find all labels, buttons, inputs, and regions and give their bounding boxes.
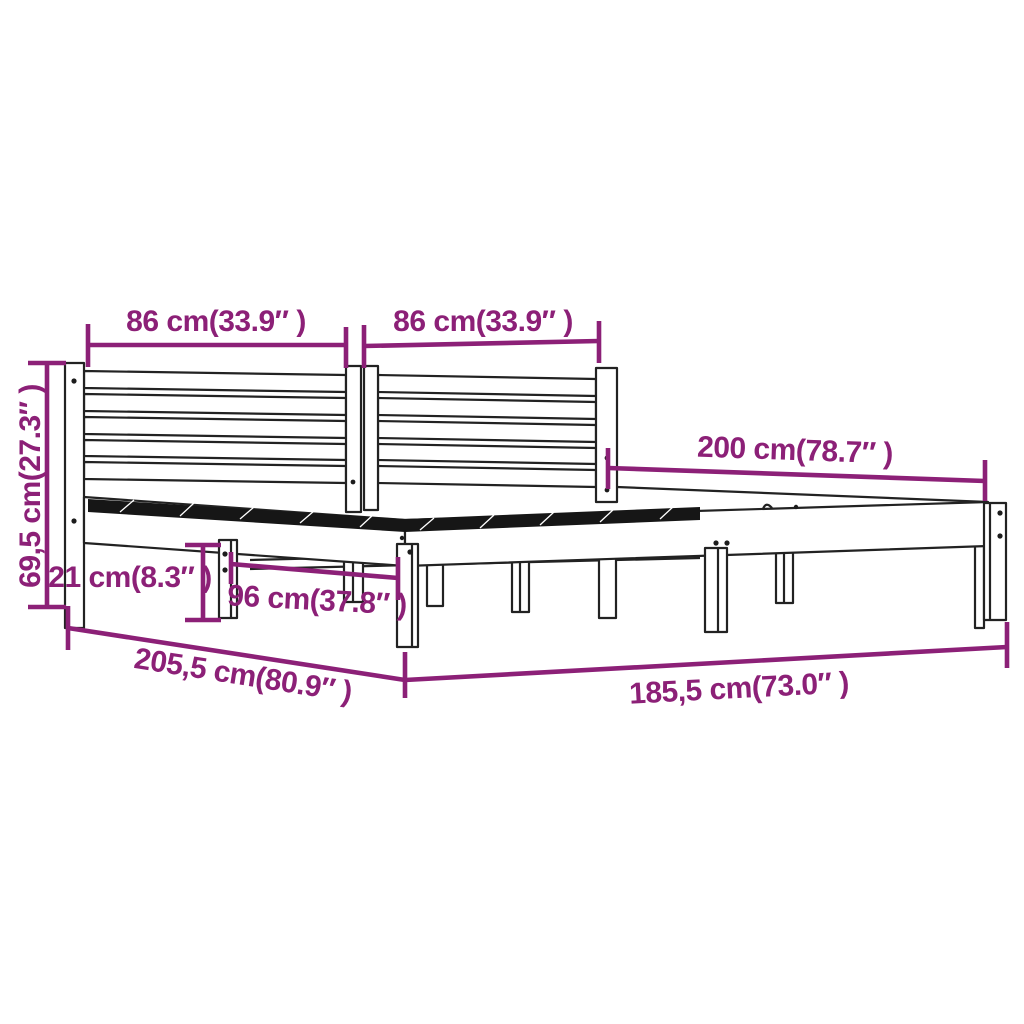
dimension-label-headboard-right-width: 86 cm(33.9″ ) — [393, 305, 573, 339]
dimension-label-headboard-left-width: 86 cm(33.9″ ) — [126, 305, 306, 339]
bed-frame-drawing — [0, 0, 1024, 1024]
headboard-right-slats — [378, 375, 596, 487]
headboard-left-slats — [84, 371, 346, 483]
dimension-label-headboard-height: 69,5 cm(27.3″ ) — [14, 384, 48, 588]
bed-frame-dimension-diagram: 86 cm(33.9″ ) 86 cm(33.9″ ) 200 cm(78.7″… — [0, 0, 1024, 1024]
dimension-label-leg-clearance: 21 cm(8.3″ ) — [48, 561, 211, 595]
bed-frame-outline — [65, 363, 1006, 647]
dimension-label-bed-length: 200 cm(78.7″ ) — [697, 431, 894, 472]
